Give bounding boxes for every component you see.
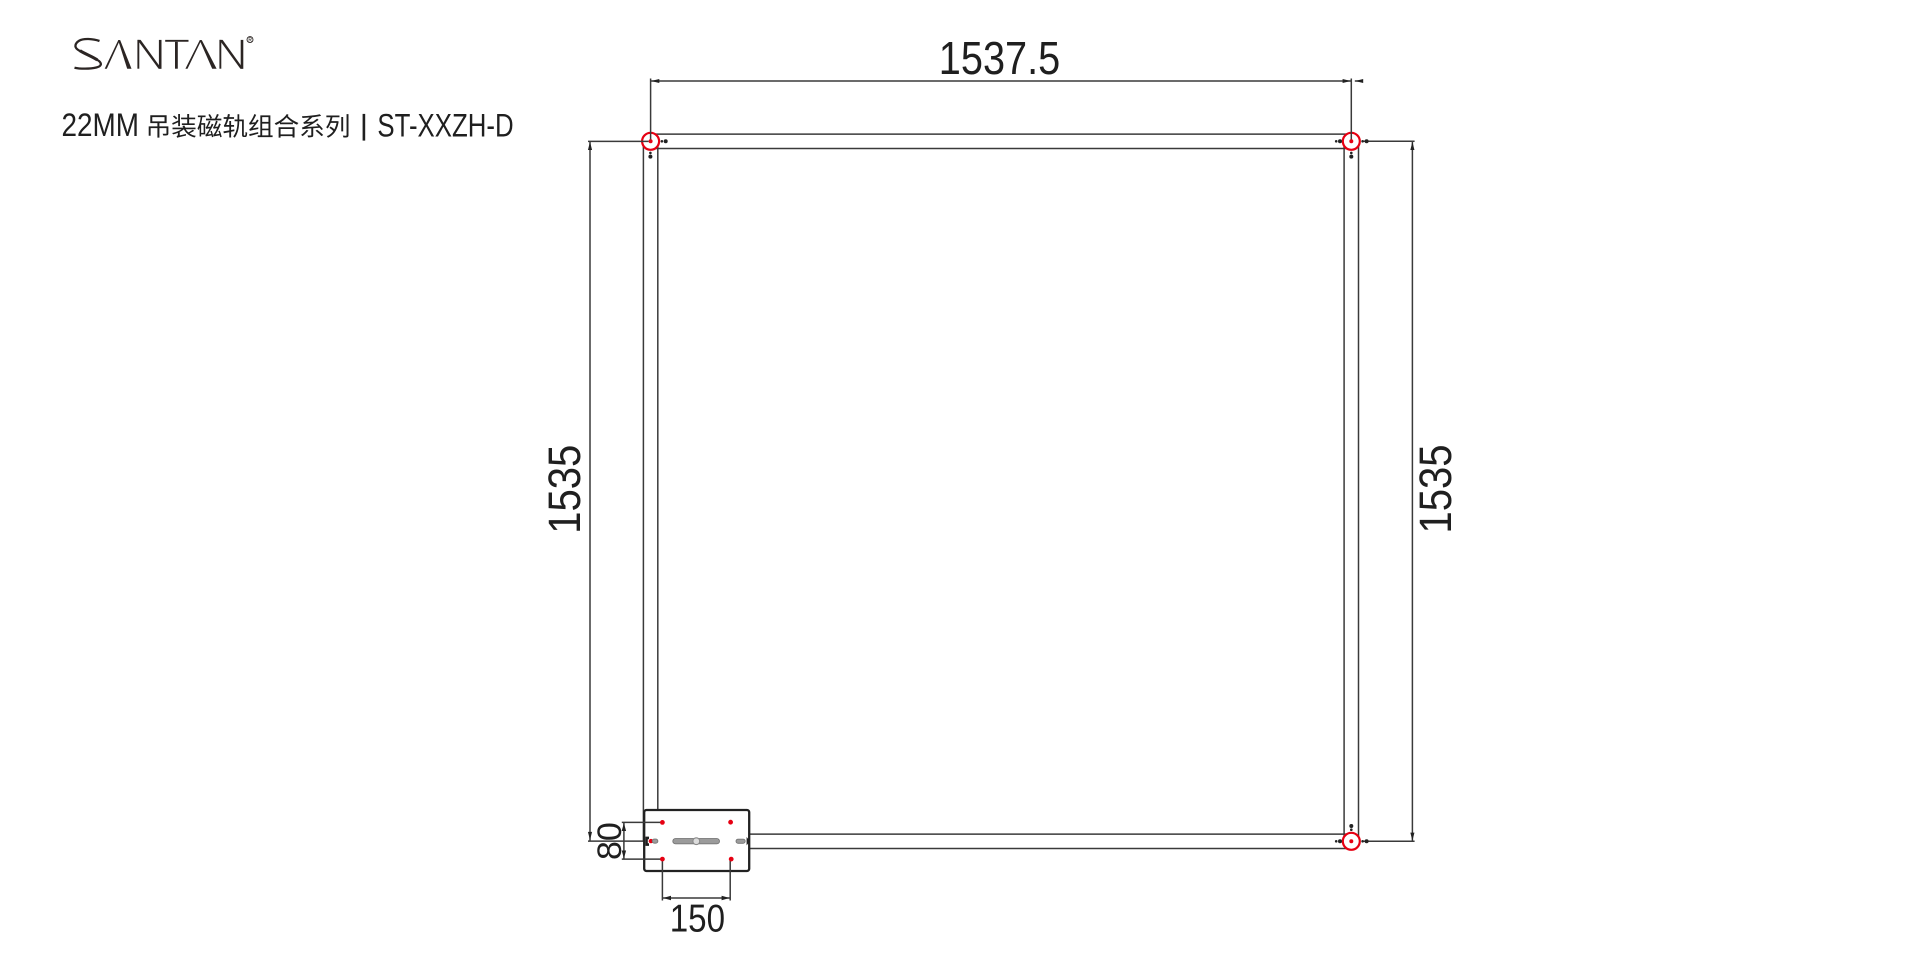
svg-text:1535: 1535 xyxy=(1410,445,1461,534)
svg-text:22MM: 22MM xyxy=(62,107,140,143)
svg-text:1535: 1535 xyxy=(539,445,590,534)
svg-text:1537.5: 1537.5 xyxy=(939,32,1060,84)
svg-text:80: 80 xyxy=(591,822,629,860)
svg-text:150: 150 xyxy=(670,897,725,940)
svg-text:ST-XXZH-D: ST-XXZH-D xyxy=(377,108,513,144)
